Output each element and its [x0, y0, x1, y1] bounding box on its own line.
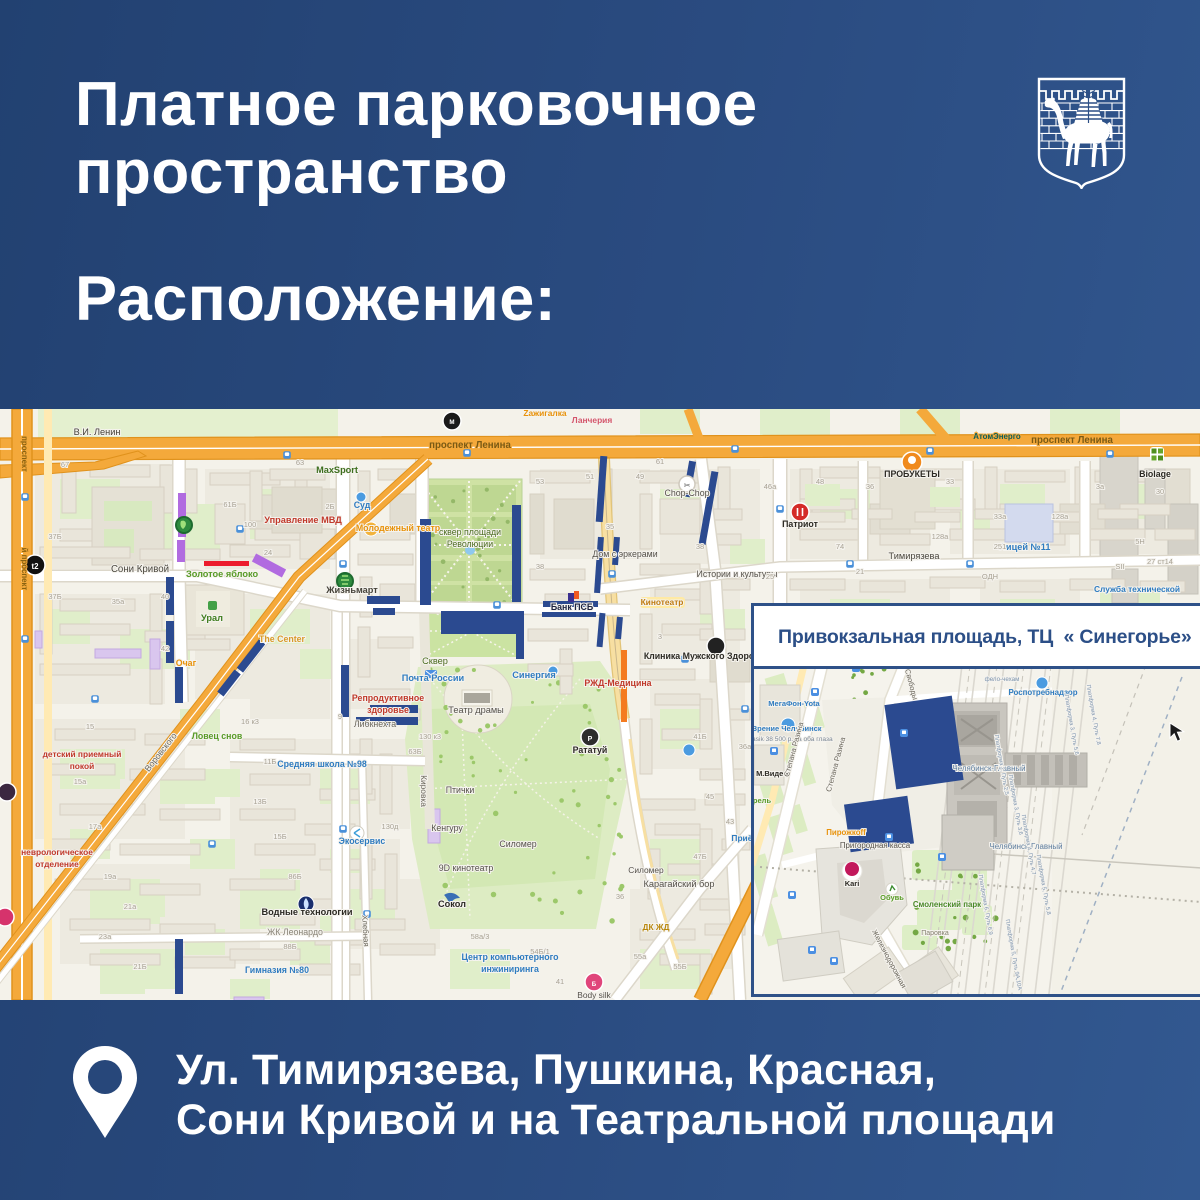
svg-text:проспект: проспект [20, 436, 29, 472]
svg-text:23а: 23а [99, 932, 112, 941]
svg-text:37Б: 37Б [48, 592, 61, 601]
svg-text:38: 38 [696, 542, 704, 551]
svg-text:МегаФон-Yota: МегаФон-Yota [768, 699, 820, 708]
svg-text:9D кинотеатр: 9D кинотеатр [439, 863, 494, 873]
svg-text:ОДН: ОДН [982, 572, 998, 581]
svg-text:Zажигалка: Zажигалка [523, 409, 567, 418]
svg-text:Кинотеатр: Кинотеатр [641, 597, 684, 607]
svg-text:53: 53 [536, 477, 544, 486]
svg-text:Body silk: Body silk [577, 990, 611, 1000]
svg-text:Biolage: Biolage [1139, 469, 1171, 479]
svg-text:ЖК Леонардо: ЖК Леонардо [267, 927, 323, 937]
svg-text:Кенгуру: Кенгуру [431, 823, 463, 833]
svg-text:35а: 35а [112, 597, 125, 606]
svg-text:54Б/1: 54Б/1 [530, 947, 550, 956]
svg-text:Жизньмарт: Жизньмарт [325, 585, 378, 595]
svg-text:25: 25 [766, 572, 774, 581]
svg-text:Молодежный театр: Молодежный театр [356, 523, 441, 533]
svg-text:15: 15 [86, 722, 94, 731]
svg-text:Служба технической: Служба технической [1094, 584, 1180, 594]
svg-text:9: 9 [338, 712, 342, 721]
svg-text:рель: рель [754, 796, 771, 805]
svg-text:45: 45 [706, 792, 714, 801]
svg-text:128а: 128а [1052, 512, 1070, 521]
svg-text:128а: 128а [932, 532, 950, 541]
svg-text:37Б: 37Б [48, 532, 61, 541]
svg-text:Зрение Челябинск: Зрение Челябинск [754, 724, 822, 733]
svg-text:ДК ЖД: ДК ЖД [643, 922, 670, 932]
svg-text:Сокол: Сокол [438, 899, 466, 909]
svg-text:61Б: 61Б [223, 500, 236, 509]
svg-text:Театр драмы: Театр драмы [448, 705, 503, 715]
svg-text:здоровье: здоровье [367, 705, 409, 715]
svg-text:130д: 130д [382, 822, 400, 831]
svg-text:55Б: 55Б [673, 962, 686, 971]
svg-text:M: M [449, 419, 454, 426]
svg-text:30: 30 [1156, 487, 1164, 496]
svg-text:40: 40 [161, 592, 169, 601]
svg-text:й проспект: й проспект [20, 548, 29, 591]
svg-text:Обувь: Обувь [880, 893, 904, 902]
svg-text:48: 48 [816, 477, 824, 486]
svg-text:63: 63 [296, 458, 304, 467]
svg-text:сквер площади: сквер площади [439, 527, 501, 537]
svg-text:Птички: Птички [446, 785, 475, 795]
svg-text:Ланчерия: Ланчерия [572, 415, 613, 425]
svg-text:21: 21 [856, 567, 864, 576]
svg-text:15а: 15а [74, 777, 87, 786]
svg-text:15Б: 15Б [273, 832, 286, 841]
svg-text:Лицей №11: Лицей №11 [999, 542, 1050, 552]
svg-text:33а: 33а [994, 512, 1007, 521]
svg-text:Chop-Chop: Chop-Chop [665, 488, 710, 498]
svg-text:Б: Б [592, 981, 597, 988]
svg-text:фело-чехам: фело-чехам [985, 676, 1020, 683]
svg-text:Почта России: Почта России [402, 673, 465, 683]
svg-text:Ловец снов: Ловец снов [192, 731, 243, 741]
svg-text:35: 35 [606, 522, 614, 531]
svg-text:3: 3 [658, 632, 662, 641]
svg-text:21Б: 21Б [133, 962, 146, 971]
svg-text:Революции: Революции [447, 539, 493, 549]
svg-text:P: P [588, 736, 593, 743]
svg-text:55а: 55а [634, 952, 647, 961]
svg-text:Синергия: Синергия [512, 670, 555, 680]
svg-text:ПРОБУКЕТЫ: ПРОБУКЕТЫ [884, 469, 940, 479]
svg-text:11Б: 11Б [264, 757, 277, 766]
svg-text:Смоленский парк: Смоленский парк [913, 900, 981, 909]
svg-text:Золотое яблоко: Золотое яблоко [186, 569, 259, 579]
svg-text:Либкнехта: Либкнехта [354, 719, 396, 729]
svg-text:Челябинск-Главный: Челябинск-Главный [952, 764, 1025, 773]
svg-text:Kari: Kari [845, 879, 860, 888]
svg-text:Паровка: Паровка [921, 930, 949, 937]
svg-text:Тимирязева: Тимирязева [889, 551, 941, 561]
svg-text:РЖД-Медицина: РЖД-Медицина [584, 678, 651, 688]
svg-text:21а: 21а [124, 902, 137, 911]
svg-text:41: 41 [556, 977, 564, 986]
svg-text:5Н: 5Н [1135, 537, 1145, 546]
svg-text:51: 51 [586, 472, 594, 481]
svg-text:46а: 46а [764, 482, 777, 491]
svg-text:проспект Ленина: проспект Ленина [1031, 435, 1113, 446]
svg-text:Патриот: Патриот [782, 519, 818, 529]
svg-text:Репродуктивное: Репродуктивное [352, 693, 424, 703]
svg-text:The Center: The Center [259, 634, 306, 644]
svg-text:251: 251 [994, 542, 1007, 551]
svg-text:SII: SII [1115, 562, 1124, 571]
svg-text:Рататуй: Рататуй [573, 745, 608, 755]
svg-text:58а/3: 58а/3 [471, 932, 490, 941]
svg-text:19а: 19а [104, 872, 117, 881]
svg-text:Пирожкоff: Пирожкоff [826, 828, 866, 837]
svg-text:Банк ПСБ: Банк ПСБ [551, 602, 594, 612]
svg-text:2Б: 2Б [325, 502, 334, 511]
svg-text:36: 36 [866, 482, 874, 491]
svg-text:47Б: 47Б [693, 852, 706, 861]
svg-text:67: 67 [61, 460, 69, 469]
svg-text:86Б: 86Б [288, 872, 301, 881]
svg-text:Гимназия №80: Гимназия №80 [245, 965, 309, 975]
svg-text:13Б: 13Б [253, 797, 266, 806]
svg-text:24: 24 [264, 548, 272, 557]
svg-text:Пригородная касса: Пригородная касса [840, 841, 911, 850]
svg-text:33: 33 [946, 477, 954, 486]
svg-text:17а: 17а [89, 822, 102, 831]
svg-text:16 к3: 16 к3 [241, 717, 259, 726]
svg-text:27 ст14: 27 ст14 [1147, 557, 1173, 566]
svg-text:Сони Кривой: Сони Кривой [111, 564, 169, 575]
svg-text:Дом с эркерами: Дом с эркерами [592, 549, 657, 559]
svg-text:130 к3: 130 к3 [419, 732, 441, 741]
svg-text:MaxSport: MaxSport [316, 465, 358, 475]
svg-text:отделение: отделение [35, 859, 79, 869]
svg-text:61: 61 [656, 457, 664, 466]
svg-text:74: 74 [836, 542, 844, 551]
svg-text:36: 36 [616, 892, 624, 901]
svg-text:Средняя школа №98: Средняя школа №98 [277, 759, 367, 769]
svg-text:В.И. Ленин: В.И. Ленин [74, 427, 121, 437]
svg-text:Карагайский бор: Карагайский бор [644, 879, 715, 889]
svg-text:АтомЭнерго: АтомЭнерго [973, 432, 1021, 441]
svg-text:63Б: 63Б [408, 747, 421, 756]
svg-text:инжиниринга: инжиниринга [481, 964, 539, 974]
svg-text:Сквер: Сквер [422, 656, 448, 666]
svg-text:t2: t2 [31, 562, 39, 571]
svg-text:42: 42 [161, 644, 169, 653]
svg-text:3а: 3а [1096, 482, 1105, 491]
svg-text:49: 49 [636, 472, 644, 481]
svg-text:Хлебная: Хлебная [360, 915, 371, 947]
svg-text:Силомер: Силомер [499, 839, 536, 849]
svg-text:Очаг: Очаг [176, 658, 197, 668]
svg-text:43: 43 [726, 817, 734, 826]
svg-text:41Б: 41Б [693, 732, 706, 741]
svg-text:неврологическое: неврологическое [21, 847, 93, 857]
svg-text:проспект Ленина: проспект Ленина [429, 440, 511, 451]
svg-text:Кировка: Кировка [419, 775, 429, 807]
svg-text:Суд: Суд [354, 500, 371, 510]
svg-text:Управление МВД: Управление МВД [264, 515, 342, 525]
svg-text:38: 38 [536, 562, 544, 571]
svg-text:100: 100 [244, 520, 257, 529]
svg-text:Силомер: Силомер [628, 865, 664, 875]
svg-text:покой: покой [70, 761, 95, 771]
svg-text:Водные технологии: Водные технологии [262, 907, 353, 917]
svg-text:88Б: 88Б [283, 942, 296, 951]
svg-text:детский приемный: детский приемный [43, 749, 122, 759]
svg-text:Урал: Урал [201, 613, 223, 623]
svg-text:Экосервис: Экосервис [339, 836, 386, 846]
